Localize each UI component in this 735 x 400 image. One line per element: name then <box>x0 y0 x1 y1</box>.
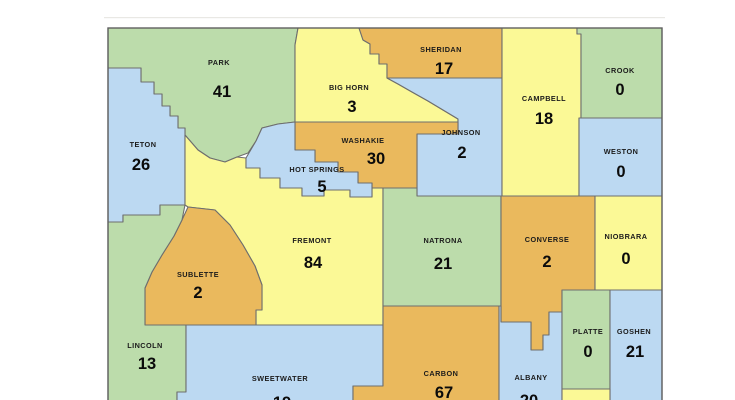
county-label-campbell: CAMPBELL <box>522 94 566 103</box>
county-value-hotsprings: 5 <box>317 178 326 196</box>
county-value-platte: 0 <box>583 343 592 361</box>
county-label-washakie: WASHAKIE <box>342 136 385 145</box>
county-value-carbon: 67 <box>435 384 453 400</box>
county-value-converse: 2 <box>542 253 551 271</box>
county-label-teton: TETON <box>130 140 157 149</box>
county-label-converse: CONVERSE <box>525 235 570 244</box>
county-value-sweetwater: 19 <box>273 394 291 400</box>
county-shape-platte <box>562 290 610 389</box>
top-divider-line <box>104 17 665 18</box>
county-value-goshen: 21 <box>626 343 644 361</box>
county-value-albany: 20 <box>520 392 538 400</box>
county-label-park: PARK <box>208 58 230 67</box>
county-label-niobrara: NIOBRARA <box>605 232 648 241</box>
county-label-hotsprings: HOT SPRINGS <box>289 165 344 174</box>
wyoming-county-map: PARK41TETON26BIG HORN3SHERIDAN17JOHNSON2… <box>0 0 735 400</box>
county-value-niobrara: 0 <box>621 250 630 268</box>
county-value-washakie: 30 <box>367 150 385 168</box>
county-value-lincoln: 13 <box>138 355 156 373</box>
county-shape-weston <box>579 118 662 196</box>
county-label-lincoln: LINCOLN <box>127 341 163 350</box>
county-value-sheridan: 17 <box>435 60 453 78</box>
county-value-crook: 0 <box>615 81 624 99</box>
county-label-goshen: GOSHEN <box>617 327 651 336</box>
county-value-weston: 0 <box>616 163 625 181</box>
county-label-bighorn: BIG HORN <box>329 83 369 92</box>
county-label-platte: PLATTE <box>573 327 604 336</box>
county-value-park: 41 <box>213 83 231 101</box>
county-label-sublette: SUBLETTE <box>177 270 219 279</box>
county-shape-natrona <box>383 188 501 306</box>
county-value-campbell: 18 <box>535 110 553 128</box>
county-value-bighorn: 3 <box>347 98 356 116</box>
county-label-sheridan: SHERIDAN <box>420 45 462 54</box>
county-value-teton: 26 <box>132 156 150 174</box>
county-shape-laramie <box>562 389 610 400</box>
county-label-natrona: NATRONA <box>423 236 462 245</box>
county-label-albany: ALBANY <box>514 373 547 382</box>
county-shape-niobrara <box>595 196 662 290</box>
county-value-johnson: 2 <box>457 144 466 162</box>
county-value-sublette: 2 <box>193 284 202 302</box>
county-shape-sweetwater <box>177 325 383 400</box>
county-label-johnson: JOHNSON <box>441 128 480 137</box>
county-label-weston: WESTON <box>604 147 639 156</box>
county-label-carbon: CARBON <box>424 369 459 378</box>
county-label-sweetwater: SWEETWATER <box>252 374 309 383</box>
county-value-fremont: 84 <box>304 254 323 272</box>
county-value-natrona: 21 <box>434 255 452 273</box>
county-label-fremont: FREMONT <box>292 236 331 245</box>
county-label-crook: CROOK <box>605 66 635 75</box>
page-background: PARK41TETON26BIG HORN3SHERIDAN17JOHNSON2… <box>0 0 735 400</box>
